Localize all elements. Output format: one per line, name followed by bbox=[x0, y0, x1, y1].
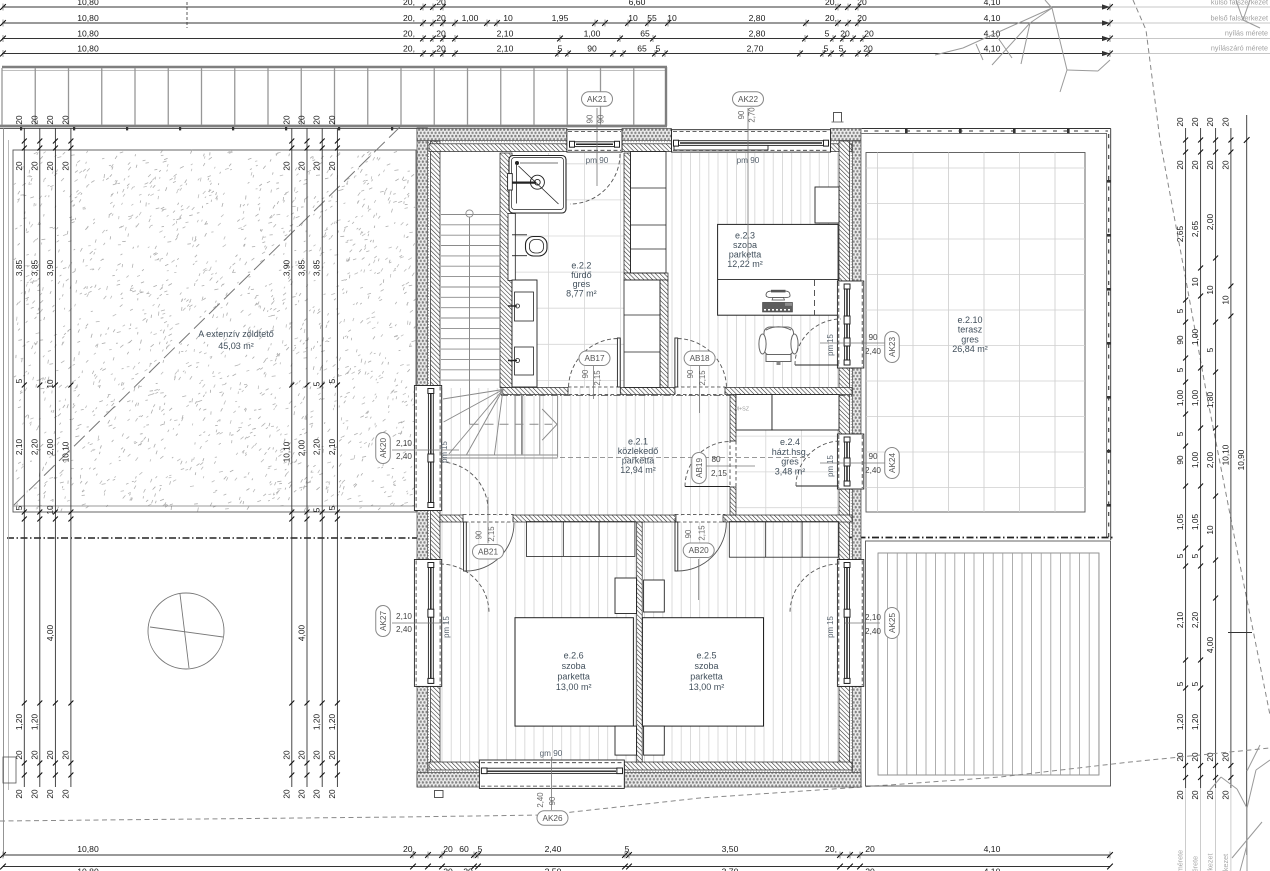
svg-text:parketta: parketta bbox=[622, 456, 655, 466]
svg-text:AB19: AB19 bbox=[695, 458, 704, 478]
svg-text:90: 90 bbox=[581, 369, 590, 378]
svg-text:20: 20 bbox=[312, 750, 322, 760]
svg-text:1,00: 1,00 bbox=[584, 28, 601, 38]
svg-text:2,00: 2,00 bbox=[1205, 452, 1215, 469]
svg-text:20: 20 bbox=[857, 13, 867, 23]
svg-text:5: 5 bbox=[1205, 347, 1215, 352]
svg-text:10,80: 10,80 bbox=[77, 844, 99, 854]
svg-text:2,15: 2,15 bbox=[487, 526, 496, 542]
svg-text:4,10: 4,10 bbox=[984, 844, 1001, 854]
svg-text:8,77 m²: 8,77 m² bbox=[566, 288, 597, 298]
svg-text:2,20: 2,20 bbox=[29, 439, 39, 456]
svg-text:20: 20 bbox=[60, 750, 70, 760]
svg-text:2,00: 2,00 bbox=[1205, 214, 1215, 231]
svg-text:20: 20 bbox=[327, 161, 337, 171]
svg-text:10: 10 bbox=[667, 13, 677, 23]
svg-text:20: 20 bbox=[60, 115, 70, 125]
svg-text:4,00: 4,00 bbox=[1205, 637, 1215, 654]
svg-text:2,15: 2,15 bbox=[593, 370, 602, 386]
svg-text:20: 20 bbox=[14, 789, 24, 799]
svg-text:4,10: 4,10 bbox=[984, 867, 1001, 871]
svg-text:10,80: 10,80 bbox=[77, 13, 99, 23]
svg-text:2,40: 2,40 bbox=[396, 452, 412, 461]
svg-text:20: 20 bbox=[1205, 117, 1215, 127]
svg-text:20: 20 bbox=[14, 115, 24, 125]
svg-text:M+SZ: M+SZ bbox=[735, 407, 750, 413]
svg-text:külső falszerkezet: külső falszerkezet bbox=[1221, 854, 1230, 871]
svg-text:4,10: 4,10 bbox=[984, 0, 1001, 7]
svg-text:1,00: 1,00 bbox=[1175, 390, 1185, 407]
svg-text:2,00: 2,00 bbox=[45, 439, 55, 456]
svg-text:5: 5 bbox=[1175, 367, 1185, 372]
svg-text:90: 90 bbox=[597, 114, 606, 123]
svg-text:2,65: 2,65 bbox=[1175, 226, 1185, 243]
svg-text:20: 20 bbox=[327, 750, 337, 760]
svg-text:4,10: 4,10 bbox=[984, 13, 1001, 23]
svg-text:4,00: 4,00 bbox=[297, 625, 307, 642]
svg-text:65: 65 bbox=[637, 43, 647, 53]
svg-text:20: 20 bbox=[297, 750, 307, 760]
svg-text:2,20: 2,20 bbox=[312, 439, 322, 456]
svg-text:2,10: 2,10 bbox=[14, 439, 24, 456]
svg-text:20: 20 bbox=[281, 789, 291, 799]
svg-text:nyílás mérete: nyílás mérete bbox=[1191, 856, 1200, 871]
svg-text:10,80: 10,80 bbox=[77, 867, 99, 871]
svg-text:AK21: AK21 bbox=[587, 95, 607, 104]
svg-text:2,70: 2,70 bbox=[748, 107, 757, 123]
svg-text:1,20: 1,20 bbox=[327, 714, 337, 731]
svg-text:20: 20 bbox=[281, 750, 291, 760]
svg-text:10,10: 10,10 bbox=[60, 441, 70, 462]
svg-text:20: 20 bbox=[1220, 160, 1230, 170]
svg-text:4,10: 4,10 bbox=[984, 43, 1001, 53]
svg-text:1,20: 1,20 bbox=[1190, 714, 1200, 731]
svg-text:20: 20 bbox=[60, 161, 70, 171]
svg-text:3,85: 3,85 bbox=[29, 260, 39, 277]
svg-text:2,65: 2,65 bbox=[1190, 221, 1200, 238]
svg-text:4,00: 4,00 bbox=[45, 625, 55, 642]
svg-text:90: 90 bbox=[1175, 335, 1185, 345]
svg-text:10: 10 bbox=[503, 13, 513, 23]
svg-text:20: 20 bbox=[312, 789, 322, 799]
svg-text:20: 20 bbox=[312, 161, 322, 171]
svg-text:5: 5 bbox=[1175, 308, 1185, 313]
svg-text:10: 10 bbox=[1205, 525, 1215, 535]
svg-text:1,20: 1,20 bbox=[312, 714, 322, 731]
svg-text:házt.hsg.: házt.hsg. bbox=[772, 447, 809, 457]
svg-text:20: 20 bbox=[1190, 752, 1200, 762]
svg-text:10: 10 bbox=[1220, 295, 1230, 305]
svg-text:3,85: 3,85 bbox=[14, 260, 24, 277]
svg-text:5: 5 bbox=[1190, 681, 1200, 686]
svg-text:AK22: AK22 bbox=[738, 95, 758, 104]
svg-text:12,94 m²: 12,94 m² bbox=[620, 465, 656, 475]
svg-text:pm 90: pm 90 bbox=[737, 156, 760, 165]
svg-text:20,: 20, bbox=[403, 43, 415, 53]
svg-text:10: 10 bbox=[1205, 285, 1215, 295]
svg-text:2,40: 2,40 bbox=[865, 627, 881, 636]
svg-text:20: 20 bbox=[14, 161, 24, 171]
svg-text:5: 5 bbox=[327, 505, 337, 510]
svg-text:20,: 20, bbox=[825, 13, 837, 23]
svg-text:20: 20 bbox=[443, 867, 453, 871]
svg-text:nyílászáró mérete: nyílászáró mérete bbox=[1211, 44, 1268, 53]
svg-text:AB21: AB21 bbox=[478, 548, 498, 557]
svg-text:terasz: terasz bbox=[958, 325, 983, 335]
svg-text:20: 20 bbox=[1220, 790, 1230, 800]
svg-text:2,50: 2,50 bbox=[545, 867, 562, 871]
svg-text:20: 20 bbox=[297, 115, 307, 125]
svg-text:AB17: AB17 bbox=[584, 354, 604, 363]
svg-text:2,80: 2,80 bbox=[749, 28, 766, 38]
svg-text:1,20: 1,20 bbox=[1175, 714, 1185, 731]
svg-text:3,90: 3,90 bbox=[281, 260, 291, 277]
svg-text:1,00: 1,00 bbox=[1190, 329, 1200, 346]
svg-text:90: 90 bbox=[737, 110, 746, 119]
svg-text:parketta: parketta bbox=[690, 672, 723, 682]
svg-text:20: 20 bbox=[1190, 160, 1200, 170]
svg-text:5: 5 bbox=[14, 378, 24, 383]
svg-text:2,10: 2,10 bbox=[327, 439, 337, 456]
svg-text:90: 90 bbox=[475, 530, 484, 539]
svg-text:e.2.10: e.2.10 bbox=[957, 315, 982, 325]
svg-text:20: 20 bbox=[1175, 160, 1185, 170]
svg-text:1,95: 1,95 bbox=[552, 13, 569, 23]
svg-text:20: 20 bbox=[45, 789, 55, 799]
svg-text:20,: 20, bbox=[403, 13, 415, 23]
svg-text:pm 15: pm 15 bbox=[826, 334, 835, 356]
svg-text:2,10: 2,10 bbox=[1175, 612, 1185, 629]
svg-text:60: 60 bbox=[459, 844, 469, 854]
svg-text:e.2.3: e.2.3 bbox=[735, 231, 755, 241]
svg-text:1,00: 1,00 bbox=[462, 13, 479, 23]
svg-text:2,70: 2,70 bbox=[747, 43, 764, 53]
svg-text:e.2.5: e.2.5 bbox=[696, 651, 716, 661]
svg-text:szoba: szoba bbox=[733, 240, 757, 250]
svg-text:2,40: 2,40 bbox=[536, 792, 545, 808]
svg-text:2,40: 2,40 bbox=[545, 844, 562, 854]
svg-text:65: 65 bbox=[640, 28, 650, 38]
svg-text:1,80: 1,80 bbox=[1205, 392, 1215, 409]
svg-text:20: 20 bbox=[29, 115, 39, 125]
svg-text:10: 10 bbox=[45, 505, 55, 515]
svg-text:10,10: 10,10 bbox=[1220, 444, 1230, 465]
svg-text:A extenzív zöldtető: A extenzív zöldtető bbox=[198, 329, 274, 339]
svg-text:e.2.6: e.2.6 bbox=[564, 651, 584, 661]
svg-text:5: 5 bbox=[1175, 553, 1185, 558]
svg-text:pm 15: pm 15 bbox=[826, 616, 835, 638]
svg-text:nyílás mérete: nyílás mérete bbox=[1225, 29, 1268, 38]
svg-text:20: 20 bbox=[45, 161, 55, 171]
svg-text:2,20: 2,20 bbox=[1190, 612, 1200, 629]
svg-text:parketta: parketta bbox=[729, 250, 762, 260]
svg-text:90: 90 bbox=[587, 43, 597, 53]
svg-text:10,80: 10,80 bbox=[77, 28, 99, 38]
svg-text:e.2.1: e.2.1 bbox=[628, 437, 648, 447]
svg-text:1,05: 1,05 bbox=[1190, 514, 1200, 531]
svg-text:pm 90: pm 90 bbox=[586, 156, 609, 165]
svg-text:e.2.4: e.2.4 bbox=[780, 437, 800, 447]
svg-text:5: 5 bbox=[1175, 681, 1185, 686]
svg-text:2,15: 2,15 bbox=[698, 525, 707, 541]
svg-text:nyílászáró mérete: nyílászáró mérete bbox=[1176, 850, 1185, 871]
svg-text:külső falszerkezet: külső falszerkezet bbox=[1211, 0, 1268, 7]
svg-text:90: 90 bbox=[868, 333, 878, 342]
svg-text:1,00: 1,00 bbox=[1190, 452, 1200, 469]
svg-text:20: 20 bbox=[297, 789, 307, 799]
svg-text:AK26: AK26 bbox=[542, 814, 562, 823]
svg-text:2,15: 2,15 bbox=[711, 469, 727, 478]
svg-text:pm 15: pm 15 bbox=[442, 616, 451, 638]
svg-text:3,85: 3,85 bbox=[312, 260, 322, 277]
svg-text:20,: 20, bbox=[825, 844, 837, 854]
svg-text:20: 20 bbox=[45, 750, 55, 760]
svg-text:2,15: 2,15 bbox=[698, 370, 707, 386]
svg-text:45,03 m²: 45,03 m² bbox=[218, 341, 254, 351]
svg-text:AB20: AB20 bbox=[689, 546, 709, 555]
svg-text:5: 5 bbox=[312, 507, 322, 512]
svg-text:szoba: szoba bbox=[562, 661, 586, 671]
svg-text:80: 80 bbox=[711, 455, 721, 464]
svg-text:10,10: 10,10 bbox=[281, 441, 291, 462]
svg-text:20: 20 bbox=[29, 789, 39, 799]
svg-text:5: 5 bbox=[327, 378, 337, 383]
svg-text:4,10: 4,10 bbox=[984, 28, 1001, 38]
svg-text:20: 20 bbox=[327, 789, 337, 799]
svg-text:20: 20 bbox=[29, 750, 39, 760]
svg-text:10,80: 10,80 bbox=[77, 43, 99, 53]
svg-text:3,70: 3,70 bbox=[722, 867, 739, 871]
svg-text:20: 20 bbox=[14, 750, 24, 760]
svg-text:szoba: szoba bbox=[694, 661, 718, 671]
svg-text:AK24: AK24 bbox=[888, 453, 897, 473]
svg-text:gres: gres bbox=[961, 334, 979, 344]
svg-text:55: 55 bbox=[647, 13, 657, 23]
svg-text:20: 20 bbox=[327, 115, 337, 125]
svg-text:gm 90: gm 90 bbox=[540, 749, 563, 758]
svg-text:20: 20 bbox=[1190, 790, 1200, 800]
svg-text:20: 20 bbox=[312, 115, 322, 125]
svg-text:AK25: AK25 bbox=[888, 613, 897, 633]
svg-text:3,48 m²: 3,48 m² bbox=[775, 466, 806, 476]
svg-text:20: 20 bbox=[1220, 117, 1230, 127]
svg-text:gres: gres bbox=[781, 457, 799, 467]
svg-text:20: 20 bbox=[281, 115, 291, 125]
svg-text:1,20: 1,20 bbox=[14, 714, 24, 731]
svg-text:20: 20 bbox=[281, 161, 291, 171]
svg-text:20: 20 bbox=[865, 867, 875, 871]
svg-text:10,80: 10,80 bbox=[77, 0, 99, 7]
svg-text:10,90: 10,90 bbox=[1236, 449, 1246, 470]
svg-text:10: 10 bbox=[45, 379, 55, 389]
svg-text:2,40: 2,40 bbox=[865, 347, 881, 356]
svg-text:2,10: 2,10 bbox=[396, 612, 412, 621]
svg-text:5: 5 bbox=[1190, 553, 1200, 558]
svg-text:2,40: 2,40 bbox=[865, 466, 881, 475]
svg-text:3,85: 3,85 bbox=[297, 260, 307, 277]
svg-text:AK27: AK27 bbox=[379, 611, 388, 631]
svg-text:pm 15: pm 15 bbox=[440, 441, 449, 463]
svg-text:20: 20 bbox=[1205, 790, 1215, 800]
svg-text:20: 20 bbox=[1175, 790, 1185, 800]
svg-text:2,10: 2,10 bbox=[497, 28, 514, 38]
svg-text:1,05: 1,05 bbox=[1175, 514, 1185, 531]
svg-text:10: 10 bbox=[1190, 277, 1200, 287]
svg-text:5: 5 bbox=[14, 505, 24, 510]
svg-text:2,40: 2,40 bbox=[396, 625, 412, 634]
svg-text:belső falszerkezet: belső falszerkezet bbox=[1210, 14, 1268, 23]
svg-text:parketta: parketta bbox=[557, 672, 590, 682]
svg-text:5: 5 bbox=[312, 381, 322, 386]
svg-text:20: 20 bbox=[60, 789, 70, 799]
svg-text:AK23: AK23 bbox=[888, 337, 897, 357]
svg-text:13,00 m²: 13,00 m² bbox=[556, 682, 592, 692]
svg-text:90: 90 bbox=[586, 114, 595, 123]
svg-text:5: 5 bbox=[825, 28, 830, 38]
svg-text:20: 20 bbox=[1175, 117, 1185, 127]
svg-text:20,: 20, bbox=[403, 28, 415, 38]
svg-text:közlekedő: közlekedő bbox=[618, 446, 659, 456]
svg-text:90: 90 bbox=[684, 529, 693, 538]
svg-text:20: 20 bbox=[45, 115, 55, 125]
svg-text:20: 20 bbox=[1190, 117, 1200, 127]
svg-text:AK20: AK20 bbox=[379, 438, 388, 458]
svg-text:1,00: 1,00 bbox=[1190, 390, 1200, 407]
svg-text:2,80: 2,80 bbox=[749, 13, 766, 23]
svg-text:20: 20 bbox=[864, 28, 874, 38]
svg-text:20,: 20, bbox=[403, 0, 415, 7]
svg-text:20: 20 bbox=[865, 844, 875, 854]
svg-text:2,00: 2,00 bbox=[297, 440, 307, 457]
svg-text:2,10: 2,10 bbox=[396, 439, 412, 448]
svg-text:AB18: AB18 bbox=[690, 354, 710, 363]
svg-text:20: 20 bbox=[1205, 160, 1215, 170]
svg-text:20: 20 bbox=[29, 161, 39, 171]
svg-text:pm 15: pm 15 bbox=[826, 455, 835, 477]
svg-text:3,50: 3,50 bbox=[722, 844, 739, 854]
svg-text:90: 90 bbox=[686, 369, 695, 378]
svg-text:1,20: 1,20 bbox=[29, 714, 39, 731]
svg-text:13,00 m²: 13,00 m² bbox=[689, 682, 725, 692]
svg-text:26,84 m²: 26,84 m² bbox=[952, 344, 988, 354]
svg-text:3,90: 3,90 bbox=[45, 260, 55, 277]
svg-text:6,60: 6,60 bbox=[629, 0, 646, 7]
svg-text:2,10: 2,10 bbox=[497, 43, 514, 53]
svg-text:20,: 20, bbox=[825, 0, 837, 7]
svg-text:20: 20 bbox=[1220, 752, 1230, 762]
svg-text:20: 20 bbox=[297, 161, 307, 171]
svg-text:90: 90 bbox=[1175, 455, 1185, 465]
svg-text:90: 90 bbox=[868, 452, 878, 461]
svg-text:belső falszerkezet: belső falszerkezet bbox=[1206, 853, 1215, 871]
svg-text:2,10: 2,10 bbox=[865, 613, 881, 622]
svg-text:12,22 m²: 12,22 m² bbox=[727, 259, 763, 269]
svg-text:5: 5 bbox=[1175, 431, 1185, 436]
svg-text:90: 90 bbox=[548, 796, 557, 805]
